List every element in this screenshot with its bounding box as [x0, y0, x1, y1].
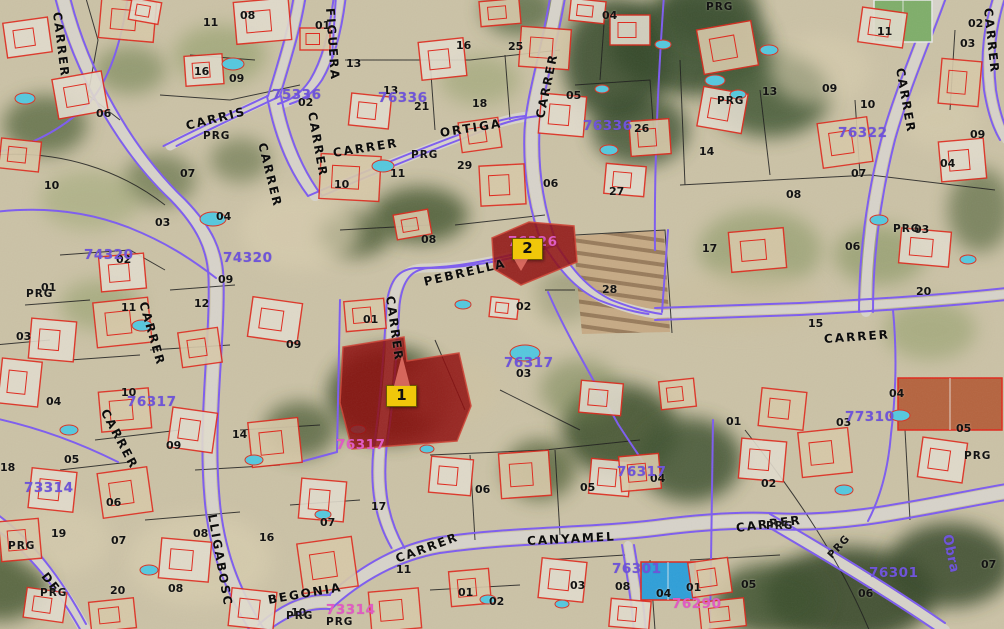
marker-pointer: [514, 259, 528, 271]
parcel-marker-2[interactable]: 2: [512, 238, 543, 260]
parcel-marker-1[interactable]: 1: [386, 385, 417, 407]
marker-pointer: [394, 355, 410, 386]
map-viewport[interactable]: CARRERCARRISCARRERCARRERFIGUERACARRERORT…: [0, 0, 1004, 629]
aerial-basemap: [0, 0, 1004, 629]
